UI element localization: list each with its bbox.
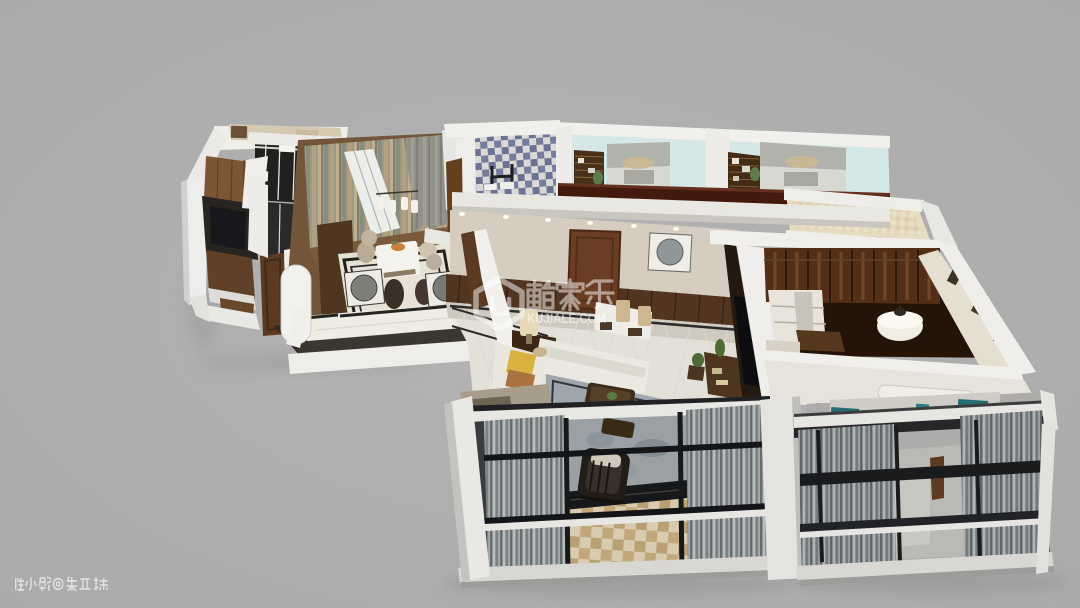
svg-text:KUJIALE.COM: KUJIALE.COM [527, 310, 606, 326]
